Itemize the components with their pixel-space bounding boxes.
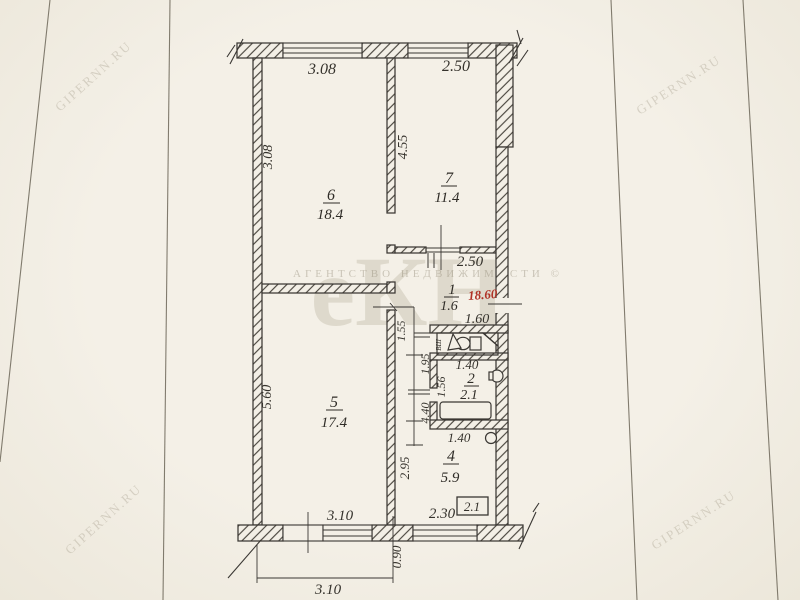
room7-number: 7 [445,170,454,187]
window-room7 [408,43,468,58]
room5-area: 17.4 [321,415,348,431]
room6-area: 18.4 [317,207,344,223]
dim-top-room6: 3.08 [307,61,336,78]
dim-hall-width: 2.50 [457,254,484,270]
wall-middle-stub [387,282,395,293]
window-room6 [283,43,362,58]
dim-bottom-230: 2.30 [429,506,456,522]
vent-handle-bath [489,372,493,380]
wall-top-pier-mid [362,43,408,58]
dim-hall-440-label: 4.40 [418,403,432,424]
wall-room6-room5 [262,284,387,293]
wall-middle-upper [387,58,395,213]
room1-number: 1 [448,282,456,298]
balcony-door-opening [283,525,323,541]
wall-left-exterior [253,58,262,525]
dim-top-room7: 2.50 [442,58,470,75]
dim-wc-width: 1.60 [465,312,490,327]
watermark-bottom-right: GIPERNN.RU [648,487,738,553]
wall-middle-junction [387,245,395,253]
wall-room7-bottom-left [395,247,426,253]
wall-room7-bottom-right [460,247,496,253]
toilet-tank [470,337,481,350]
dim-hall-155-label: 1.55 [394,321,408,342]
vent-circle-kitchen [486,433,497,444]
scanned-floor-plan-page: GIPERNN.RU GIPERNN.RU GIPERNN.RU GIPERNN… [0,0,800,600]
dim-room6-height: 3.08 [261,145,276,171]
dim-room7-height: 4.55 [396,135,411,160]
window-room5 [323,525,372,541]
red-annotation: 18.60 [468,286,499,303]
dim-bottom-total: 3.10 [314,582,342,598]
bathtub [440,402,491,419]
watermark-agency-line: АГЕНТСТВО НЕДВИЖИМОСТИ © [293,268,563,280]
dim-room5-height: 5.60 [260,385,275,410]
dim-balcony-boxed: 2.1 [464,499,480,514]
wall-kitchen-top [430,420,508,429]
dim-bottom-310: 3.10 [326,508,354,524]
dim-bath-width: 1.40 [456,357,479,372]
vent-shaft-label: ВШ [435,339,443,351]
window-kitchen [413,525,477,541]
watermark-bottom-left: GIPERNN.RU [62,481,145,557]
room2-number: 2 [467,371,475,387]
dim-kitchen-height: 2.95 [397,456,412,479]
room4-area: 5.9 [441,470,460,486]
wall-bottom-pier-right [477,525,523,541]
dim-kitchen-door: 1.40 [448,430,471,445]
room4-number: 4 [447,448,455,465]
dim-hall-156-label: 1.56 [434,377,448,398]
watermark-top-left: GIPERNN.RU [52,38,135,114]
wall-top-pier-left [237,43,283,58]
room5-number: 5 [330,394,338,411]
room1-area: 1.6 [440,299,458,314]
room6-number: 6 [327,187,335,204]
wall-bottom-pier-mid [372,525,413,541]
room2-area: 2.1 [460,388,478,403]
dim-bottom-offset: 0.90 [389,545,404,568]
dim-hall-195-label: 1.95 [418,354,432,375]
room7-area: 11.4 [434,190,460,206]
floor-plan-svg: GIPERNN.RU GIPERNN.RU GIPERNN.RU GIPERNN… [0,0,800,600]
watermark-top-right: GIPERNN.RU [633,52,723,118]
wall-bottom-pier-left [238,525,283,541]
